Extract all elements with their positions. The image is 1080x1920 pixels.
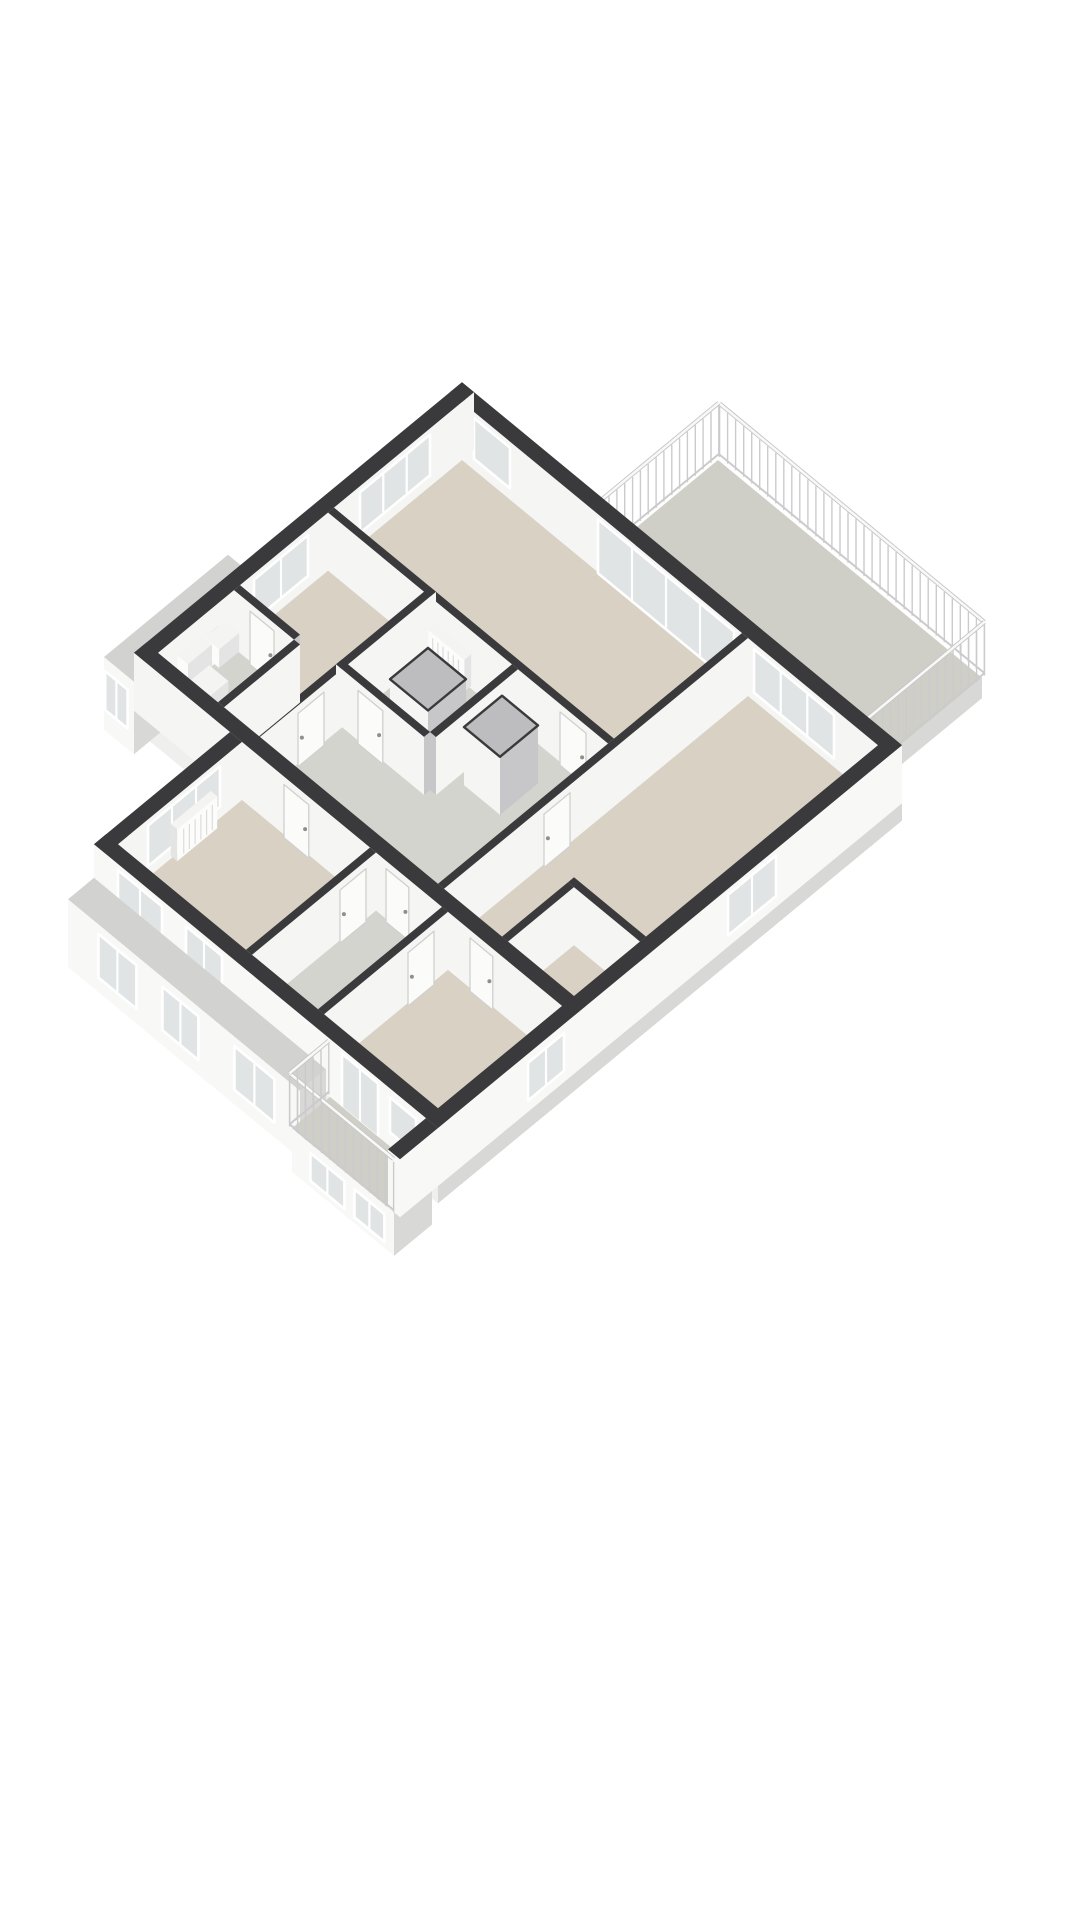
bath-side-wall-south-face: [430, 732, 436, 795]
floorplan-3d-view: [0, 0, 1080, 1920]
bath-door-handle: [377, 733, 381, 737]
bathroom2-inner-door-handle: [342, 912, 346, 916]
floorplan-svg: [0, 0, 1080, 1920]
master-door-handle: [546, 836, 550, 840]
bedroom3-inner-door-handle: [410, 975, 414, 979]
wc-door-handle: [268, 653, 272, 657]
bath-front-wall-east-face: [424, 732, 430, 795]
radiator-2-south-face: [171, 824, 177, 861]
bedroom2-door-handle: [303, 827, 307, 831]
bathroom2-door-handle: [403, 910, 407, 914]
hall-door-1-handle: [580, 755, 584, 759]
left-room-door-handle: [300, 736, 304, 740]
bedroom3-door-handle: [487, 979, 491, 983]
